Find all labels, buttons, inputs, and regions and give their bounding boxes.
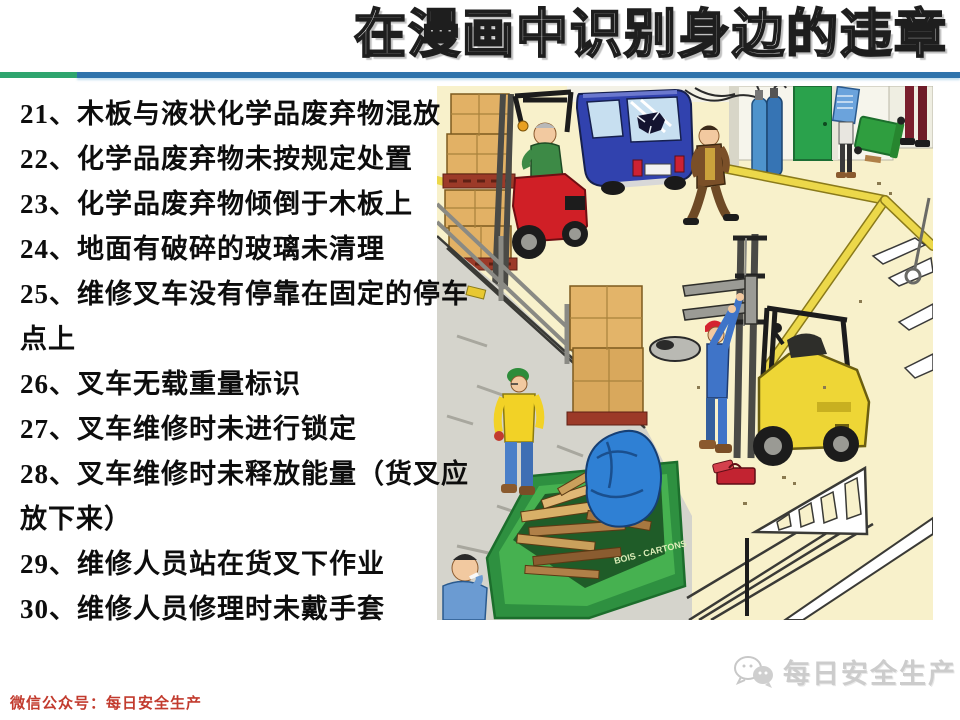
center-box-stack [567,286,647,425]
blue-tarp [586,431,661,527]
violation-line: 29、维修人员站在货叉下作业 [20,542,540,587]
title-divider [0,72,960,78]
wechat-account-note: 微信公众号：每日安全生产 [10,692,202,713]
page-title: 在漫画中识别身边的违章 [354,4,948,68]
blue-van [577,90,693,195]
watermark-text: 每日安全生产 [783,652,957,691]
violation-line: 21、木板与液状化学品废弃物混放 [20,92,540,137]
violation-line: 23、化学品废弃物倾倒于木板上 [20,182,540,227]
violation-line: 30、维修人员修理时未戴手套 [20,587,540,632]
violation-line: 24、地面有破碎的玻璃未清理 [20,227,540,272]
divider-blue-segment [77,72,960,78]
violation-line: 放下来） [20,497,540,542]
violation-line: 22、化学品废弃物未按规定处置 [20,137,540,182]
divider-green-segment [0,72,77,78]
hubcap-dish [650,337,700,361]
gas-cylinders [752,86,786,176]
violation-line: 点上 [20,317,540,362]
wechat-icon [733,654,775,690]
slide: 在漫画中识别身边的违章 21、木板与液状化学品废弃物混放22、化学品废弃物未按规… [0,0,960,720]
watermark: 每日安全生产 [733,652,957,691]
green-door [794,86,838,160]
violation-line: 27、叉车维修时未进行锁定 [20,407,540,452]
violation-line: 25、维修叉车没有停靠在固定的停车 [20,272,540,317]
violation-line: 26、叉车无载重量标识 [20,362,540,407]
violation-line: 28、叉车维修时未释放能量（货叉应 [20,452,540,497]
violation-list: 21、木板与液状化学品废弃物混放22、化学品废弃物未按规定处置23、化学品废弃物… [20,92,540,632]
